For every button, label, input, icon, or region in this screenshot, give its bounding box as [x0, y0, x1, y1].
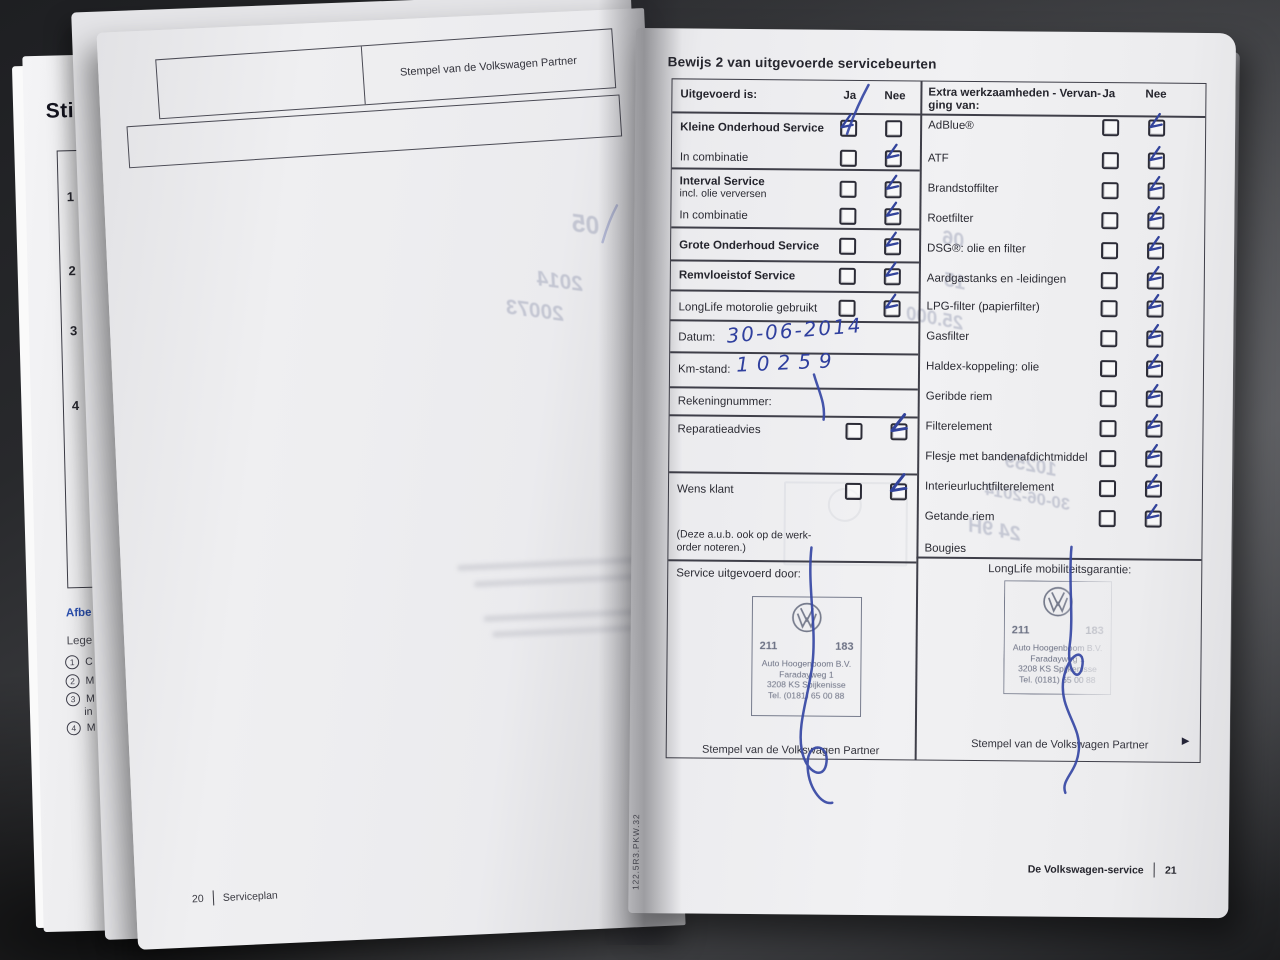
print-code: 122.5R3.PKW.32: [630, 740, 647, 890]
checkbox-ja: [1100, 300, 1117, 317]
table-row-number: 2: [68, 263, 76, 278]
table-row-number: 1: [67, 189, 75, 204]
checkmark-icon: [1146, 112, 1167, 132]
circled-number-icon: 1: [65, 655, 79, 669]
checkmark-icon: [837, 113, 858, 133]
row-divider: [670, 386, 918, 390]
checkbox-nee: [885, 120, 902, 137]
nee-header: Nee: [884, 90, 905, 103]
checkbox-ja: [1100, 360, 1117, 377]
page-number: 21: [1165, 864, 1177, 876]
handwritten-date: 30-06-2014: [726, 313, 864, 348]
checkmark-icon: [885, 472, 914, 500]
under-page-caption: Lege: [66, 635, 92, 648]
footer-label: De Volkswagen-service: [1028, 863, 1144, 876]
under-page-heading: Sti: [45, 99, 74, 124]
field-label: Km-stand:: [678, 363, 731, 376]
page-title: Bewijs 2 van uitgevoerde servicebeurten: [668, 54, 937, 71]
right-page: Bewijs 2 van uitgevoerde servicebeurten …: [628, 28, 1236, 918]
checkbox-ja: [845, 483, 862, 500]
legend-text: C: [85, 656, 93, 668]
checkbox-ja: [1102, 152, 1119, 169]
dealer-stamp: 211 183 Auto Hoogenboom B.V. Faradayweg …: [1003, 580, 1112, 695]
row-divider: [672, 167, 920, 171]
checkmark-icon: [1143, 443, 1164, 463]
footer-label: Serviceplan: [223, 889, 278, 903]
extra-item-label: Roetfilter: [927, 213, 973, 226]
extra-item-label: AdBlue®: [928, 120, 974, 133]
right-page-footer: De Volkswagen-service 21: [1028, 861, 1177, 877]
circled-number-icon: 4: [67, 721, 81, 735]
checkmark-icon: [883, 143, 904, 163]
legend-item: 1 C: [65, 655, 93, 670]
field-label: Rekeningnummer:: [678, 395, 772, 408]
note-text: (Deze a.u.b. ook op de werk-: [677, 529, 812, 542]
extra-item-label: Haldex-koppeling: olie: [926, 361, 1039, 375]
row-divider: [668, 559, 916, 563]
column-header: Uitgevoerd is:: [680, 88, 757, 101]
nee-header: Nee: [1145, 88, 1166, 101]
service-row-label: In combinatie: [679, 209, 748, 222]
checkbox-ja: [1099, 420, 1116, 437]
stamp-caption: Stempel van de Volkswagen Partner: [677, 743, 905, 757]
checkmark-icon: [883, 174, 904, 194]
service-record-table: Uitgevoerd is: Ja Nee Extra werkzaamhede…: [666, 78, 1207, 763]
checkmark-icon: [1145, 265, 1166, 285]
legend-text: M: [85, 675, 94, 687]
field-label: Datum:: [678, 331, 715, 344]
checkbox-ja: [1099, 450, 1116, 467]
checkmark-icon: [882, 201, 903, 221]
extra-item-label: Aardgastanks en -leidingen: [927, 273, 1066, 287]
checkbox-ja: [840, 181, 857, 198]
legend-item: 4 M: [67, 721, 96, 736]
checkbox-ja: [840, 150, 857, 167]
legend-item: 2 M: [65, 674, 94, 689]
bleedthrough-text: 20073: [504, 296, 565, 327]
extra-item-label: Geribde riem: [926, 391, 993, 404]
ja-header: Ja: [1102, 88, 1115, 101]
service-row-sublabel: incl. olie verversen: [680, 188, 767, 200]
handwritten-km: 10259: [736, 348, 841, 376]
stamp-caption: Stempel van de Volkswagen Partner: [925, 738, 1195, 752]
checkmark-icon: [1143, 413, 1164, 433]
extra-item-label: Getande riem: [925, 511, 995, 524]
service-by-label: Service uitgevoerd door:: [676, 567, 801, 581]
row-divider: [669, 471, 917, 475]
extra-item-label: LPG-filter (papierfilter): [927, 301, 1040, 315]
stamp-box-label: Stempel van de Volkswagen Partner: [362, 29, 615, 104]
extra-item-label: DSG®: olie en filter: [927, 243, 1026, 257]
vw-logo-icon: [790, 600, 824, 634]
checkmark-icon: [882, 231, 903, 251]
stamp-line: Auto Hoogenboom B.V.: [1006, 642, 1110, 654]
dealer-stamp: 211 183 Auto Hoogenboom B.V. Faradayweg …: [751, 596, 862, 717]
checkbox-ja: [1101, 242, 1118, 259]
checkbox-ja: [845, 423, 862, 440]
stamp-number-right: 183: [1085, 625, 1103, 637]
legend-item: 3 M: [66, 692, 95, 707]
stamp-line: Tel. (0181) 65 00 88: [1005, 674, 1109, 686]
checkbox-ja: [1102, 182, 1119, 199]
checkbox-ja: [1102, 119, 1119, 136]
legend-text: in: [84, 706, 92, 718]
checkbox-ja: [839, 238, 856, 255]
checkbox-ja: [1101, 212, 1118, 229]
stamp-number-left: 211: [1012, 624, 1030, 636]
table-row-number: 3: [70, 323, 78, 338]
extra-item-label: Bougies: [924, 543, 966, 556]
checkmark-icon: [1146, 145, 1167, 165]
checkmark-icon: [1146, 175, 1167, 195]
service-row-label: Remvloeistof Service: [679, 269, 795, 283]
checkbox-ja: [1099, 510, 1116, 527]
checkmark-icon: [1143, 503, 1164, 523]
stamp-box-empty-cell: [156, 46, 365, 118]
checkmark-icon: [1144, 323, 1165, 343]
service-row-label: Grote Onderhoud Service: [679, 239, 819, 253]
checkbox-ja: [1099, 480, 1116, 497]
service-row-label: In combinatie: [680, 151, 749, 164]
checkmark-icon: [882, 261, 903, 281]
legend-text: M: [86, 693, 95, 705]
left-page: Stempel van de Volkswagen Partner 05 201…: [97, 8, 686, 950]
checkbox-ja: [839, 268, 856, 285]
checkbox-ja: [1101, 272, 1118, 289]
ja-header: Ja: [843, 90, 856, 103]
circled-number-icon: 2: [65, 674, 79, 688]
stamp-line: Auto Hoogenboom B.V.: [753, 658, 859, 670]
checkmark-icon: [886, 412, 915, 440]
row-divider: [916, 556, 1201, 560]
row-divider: [671, 226, 919, 230]
under-page-caption: Afbe: [66, 607, 92, 620]
longlife-label: LongLife mobiliteitsgarantie:: [918, 562, 1201, 576]
legend-item-cont: in: [84, 706, 92, 718]
extra-item-label: Interieurluchtfilterelement: [925, 481, 1054, 495]
stamp-number-right: 183: [835, 641, 853, 653]
checkmark-icon: [1143, 473, 1164, 493]
checkbox-ja: [1100, 330, 1117, 347]
legend-text: M: [87, 722, 96, 734]
bleedthrough-text: 2014: [535, 267, 584, 297]
circled-number-icon: 3: [66, 692, 80, 706]
checkbox-ja: [839, 208, 856, 225]
footer-divider: [212, 890, 214, 905]
vw-logo-icon: [1041, 585, 1075, 619]
service-row-label: LongLife motorolie gebruikt: [679, 301, 818, 315]
footer-divider: [1154, 863, 1155, 878]
bleedthrough-text: 05: [570, 209, 601, 241]
table-row-number: 4: [72, 398, 80, 413]
checkmark-icon: [1145, 205, 1166, 225]
note-text: order noteren.): [676, 542, 746, 554]
stamp-line: Tel. (0181) 65 00 88: [753, 690, 859, 702]
extra-item-label: ATF: [928, 153, 949, 166]
column-header: ging van:: [928, 100, 979, 113]
extra-item-label: Flesje met bandenafdichtmiddel: [925, 451, 1087, 465]
page-number: 20: [192, 892, 204, 905]
left-page-footer: 20 Serviceplan: [192, 888, 278, 907]
next-page-arrow-icon: ▶: [1182, 736, 1190, 747]
extra-item-label: Brandstoffilter: [928, 183, 999, 196]
checkmark-icon: [1144, 353, 1165, 373]
checkbox-ja: [1100, 390, 1117, 407]
column-divider: [915, 81, 922, 759]
service-row-label: Reparatieadvies: [677, 423, 760, 436]
photo-scene: Sti 1 2 3 4 Afbe Lege 1 C 2 M 3 M in 4 M…: [0, 0, 1280, 960]
column-header: Extra werkzaamheden - Vervan-: [928, 87, 1101, 101]
extra-item-label: Gasfilter: [926, 331, 969, 344]
extra-item-label: Filterelement: [925, 421, 992, 434]
checkmark-icon: [1144, 383, 1165, 403]
bleedthrough-smudge: [457, 556, 657, 571]
checkmark-icon: [1145, 293, 1166, 313]
row-divider: [670, 414, 918, 418]
stamp-number-left: 211: [760, 640, 778, 652]
checkmark-icon: [882, 293, 903, 313]
checkmark-icon: [1145, 235, 1166, 255]
service-row-label: Wens klant: [677, 483, 734, 496]
service-row-label: Kleine Onderhoud Service: [680, 121, 824, 135]
